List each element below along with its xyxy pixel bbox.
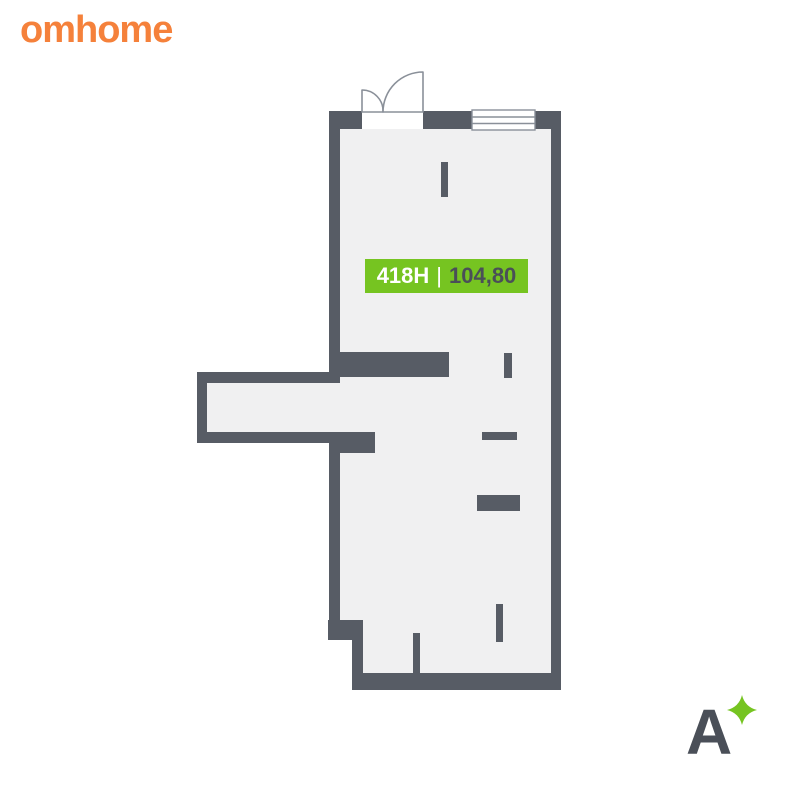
- sparkle-shape: [727, 695, 757, 725]
- page: omhome: [0, 0, 800, 800]
- door-swing-icon: [362, 72, 423, 112]
- balcony-wall-bottom: [197, 432, 340, 443]
- wall-right: [551, 111, 561, 690]
- wall-bottom: [352, 673, 561, 690]
- unit-area-badge: 418H | 104,80: [365, 259, 528, 293]
- wall-tick-bottom-right: [496, 604, 503, 642]
- wall-block-horizontal: [477, 495, 520, 511]
- wall-tick-horizontal: [482, 432, 517, 440]
- unit-area: 104,80: [449, 263, 516, 289]
- floorplan-drawing: [0, 0, 800, 800]
- wall-step-vertical: [352, 620, 363, 673]
- wall-tick-middle: [504, 353, 512, 378]
- balcony-wall-top: [197, 372, 340, 383]
- wall-tick-bottom-left: [413, 633, 420, 673]
- sparkle-icon: [722, 690, 762, 730]
- wall-left-lower: [329, 432, 340, 620]
- door-leaf-left: [362, 90, 383, 112]
- wall-stub-upper: [335, 352, 449, 377]
- floor-area: [207, 129, 552, 673]
- unit-number: 418H: [377, 263, 430, 289]
- window-icon: [472, 110, 535, 130]
- wall-top-middle: [423, 111, 472, 129]
- developer-watermark: A: [682, 690, 772, 770]
- wall-left-upper: [329, 111, 340, 377]
- badge-separator: |: [436, 263, 442, 289]
- door-leaf-right: [383, 72, 423, 112]
- window-frame: [472, 110, 535, 130]
- wall-tick-top: [441, 162, 448, 197]
